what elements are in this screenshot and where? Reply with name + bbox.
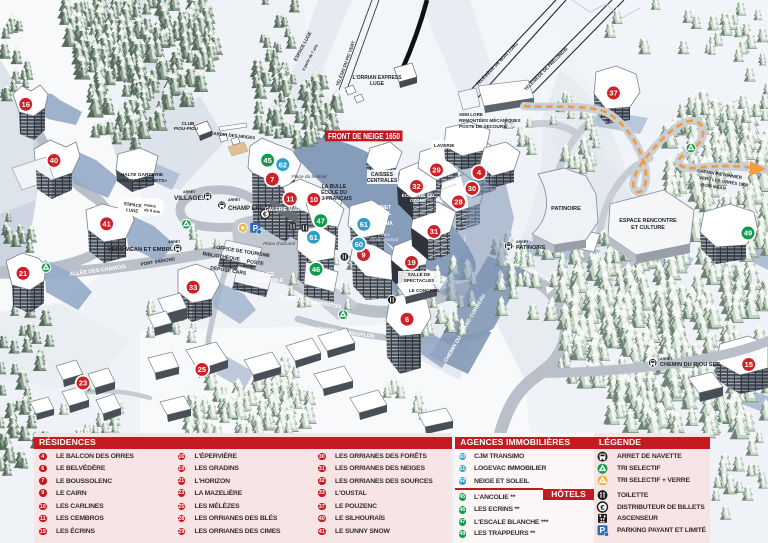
svg-text:30: 30 <box>468 184 476 193</box>
svg-text:SPECTACLES: SPECTACLES <box>404 278 435 283</box>
svg-text:61: 61 <box>309 233 318 242</box>
svg-text:11: 11 <box>286 195 295 204</box>
svg-text:60: 60 <box>355 240 363 249</box>
svg-text:CINÉMA: CINÉMA <box>373 219 393 227</box>
svg-text:28: 28 <box>454 198 462 207</box>
svg-text:CHEMIN DU RIOU SEC: CHEMIN DU RIOU SEC <box>660 362 720 368</box>
svg-text:ARRÊT: ARRÊT <box>168 239 181 244</box>
svg-text:PATINOIRE: PATINOIRE <box>551 206 581 212</box>
svg-text:23: 23 <box>79 379 87 388</box>
svg-text:SALLE DE: SALLE DE <box>408 272 431 277</box>
svg-text:VILLAGES: VILLAGES <box>174 195 207 202</box>
svg-text:LAVERIE: LAVERIE <box>434 143 455 149</box>
svg-text:MÉDICAL: MÉDICAL <box>369 209 392 217</box>
svg-text:REMONTÉES MÉCANIQUES: REMONTÉES MÉCANIQUES <box>459 116 521 123</box>
svg-text:«LES PITCHOUNETS»: «LES PITCHOUNETS» <box>117 178 168 184</box>
svg-text:32: 32 <box>412 182 420 191</box>
svg-text:25: 25 <box>198 365 207 374</box>
svg-text:MUNICIPALE: MUNICIPALE <box>253 278 284 284</box>
svg-text:OZONE: OZONE <box>410 198 426 203</box>
svg-text:15: 15 <box>744 360 753 369</box>
svg-text:16: 16 <box>21 100 29 109</box>
svg-text:Émile Hodoul: Émile Hodoul <box>370 236 399 243</box>
svg-text:40: 40 <box>50 156 58 165</box>
svg-text:PIOU-PIOU: PIOU-PIOU <box>174 126 199 131</box>
svg-text:ARRÊT: ARRÊT <box>183 189 196 194</box>
svg-text:Place d'accueil: Place d'accueil <box>263 241 296 247</box>
svg-text:46: 46 <box>312 265 320 274</box>
svg-text:7: 7 <box>270 175 274 184</box>
svg-text:47: 47 <box>316 216 324 225</box>
svg-text:HALTE GARDERIE: HALTE GARDERIE <box>121 172 164 178</box>
svg-text:61: 61 <box>360 220 369 229</box>
svg-text:FRONT DE NEIGE 1650: FRONT DE NEIGE 1650 <box>328 132 401 141</box>
svg-text:10: 10 <box>310 195 318 204</box>
svg-text:29: 29 <box>432 166 440 175</box>
svg-text:9: 9 <box>361 250 365 259</box>
svg-text:ET CULTURE: ET CULTURE <box>631 225 665 231</box>
svg-text:19: 19 <box>407 258 415 267</box>
svg-text:62: 62 <box>279 160 287 169</box>
svg-text:GALERIE MARCHANDE: GALERIE MARCHANDE <box>265 207 322 213</box>
svg-text:31: 31 <box>430 227 439 236</box>
svg-text:49: 49 <box>744 229 752 238</box>
svg-text:CENTRALES: CENTRALES <box>367 178 398 184</box>
svg-text:ARRÊT: ARRÊT <box>660 356 673 361</box>
svg-text:ÉCOLE DU: ÉCOLE DU <box>321 188 347 196</box>
svg-text:45: 45 <box>263 156 272 165</box>
svg-text:PATINOIRE: PATINOIRE <box>516 245 546 251</box>
svg-text:ESPACE RENCONTRE: ESPACE RENCONTRE <box>619 218 677 224</box>
svg-text:ARRÊT: ARRÊT <box>228 197 241 202</box>
svg-text:41: 41 <box>102 220 111 229</box>
svg-text:6: 6 <box>405 315 409 324</box>
svg-text:37: 37 <box>609 89 617 98</box>
svg-text:POSTE DE SECOURS: POSTE DE SECOURS <box>459 124 506 129</box>
svg-text:21: 21 <box>19 269 28 278</box>
svg-text:ARRÊT: ARRÊT <box>516 239 529 244</box>
svg-text:33: 33 <box>189 283 197 292</box>
svg-text:LUGE: LUGE <box>370 81 385 87</box>
svg-text:VERS MÉAN ET EMBRUN: VERS MÉAN ET EMBRUN <box>108 245 179 253</box>
svg-text:LE CONGRÈS: LE CONGRÈS <box>409 286 439 293</box>
svg-text:SEM LORE: SEM LORE <box>459 112 483 117</box>
svg-text:Place du festival: Place du festival <box>292 174 328 180</box>
